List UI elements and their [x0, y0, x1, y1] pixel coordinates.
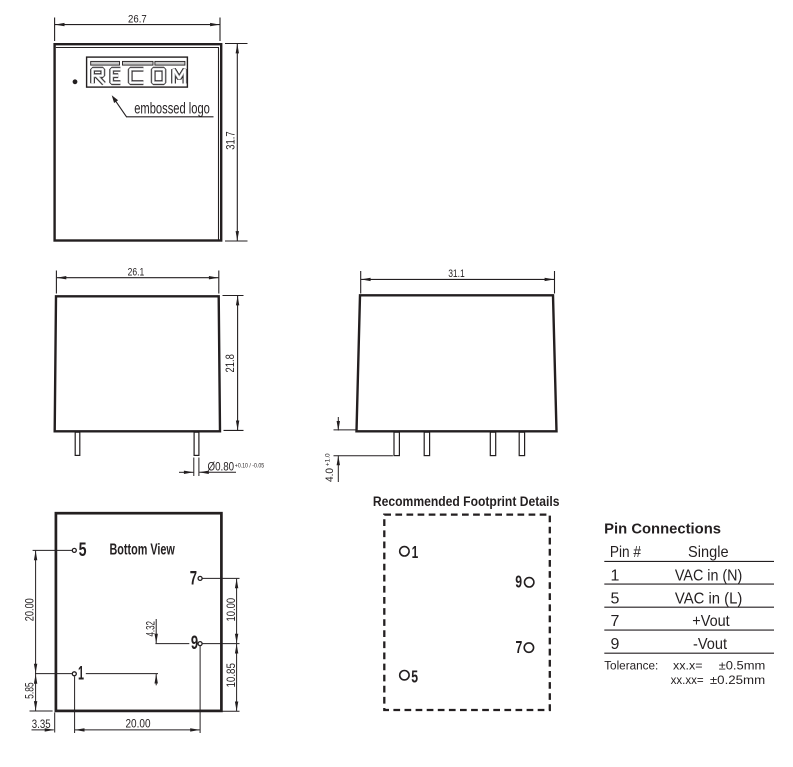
svg-text:9: 9 [515, 572, 522, 592]
svg-text:20.00: 20.00 [22, 598, 36, 621]
svg-text:5: 5 [411, 666, 418, 686]
svg-text:Recommended Footprint Details: Recommended Footprint Details [373, 494, 560, 509]
svg-text:1: 1 [412, 542, 419, 562]
svg-text:26.1: 26.1 [128, 266, 145, 278]
svg-text:Ø0.80: Ø0.80 [208, 461, 235, 473]
svg-text:xx.x=: xx.x= [673, 658, 703, 672]
svg-text:xx.xx=: xx.xx= [671, 673, 704, 687]
svg-text:+0.10 / -0.05: +0.10 / -0.05 [235, 463, 264, 470]
svg-text:embossed logo: embossed logo [134, 101, 210, 118]
svg-text:7: 7 [611, 613, 620, 630]
svg-text:4.0: 4.0 [324, 468, 336, 482]
svg-text:10.85: 10.85 [224, 663, 238, 688]
svg-text:1: 1 [611, 568, 620, 585]
svg-text:3.35: 3.35 [32, 719, 51, 731]
svg-text:5.85: 5.85 [22, 682, 36, 699]
svg-text:Bottom View: Bottom View [110, 542, 176, 559]
svg-text:VAC in (N): VAC in (N) [675, 568, 742, 585]
svg-text:VAC in (L): VAC in (L) [675, 590, 742, 607]
svg-text:+1.0: +1.0 [324, 453, 331, 466]
svg-text:7: 7 [190, 567, 197, 589]
svg-text:±0.25mm: ±0.25mm [710, 673, 765, 687]
svg-text:5: 5 [79, 539, 87, 561]
svg-text:9: 9 [191, 632, 198, 654]
svg-text:Pin #: Pin # [610, 544, 641, 561]
svg-text:31.7: 31.7 [224, 131, 238, 150]
svg-text:+Vout: +Vout [692, 613, 730, 630]
svg-text:-Vout: -Vout [693, 636, 728, 653]
svg-text:7: 7 [516, 637, 523, 657]
svg-text:5: 5 [611, 590, 620, 607]
svg-text:20.00: 20.00 [126, 719, 151, 731]
svg-text:Tolerance:: Tolerance: [604, 658, 658, 672]
svg-text:31.1: 31.1 [448, 268, 465, 280]
svg-text:26.7: 26.7 [128, 14, 147, 26]
svg-text:Pin Connections: Pin Connections [604, 521, 721, 537]
svg-text:4.32: 4.32 [146, 621, 158, 637]
svg-text:±0.5mm: ±0.5mm [719, 658, 766, 672]
svg-text:1: 1 [78, 663, 84, 685]
svg-text:21.8: 21.8 [223, 354, 237, 373]
svg-text:9: 9 [611, 636, 620, 653]
svg-text:10.00: 10.00 [224, 598, 238, 622]
svg-text:Single: Single [688, 544, 729, 561]
